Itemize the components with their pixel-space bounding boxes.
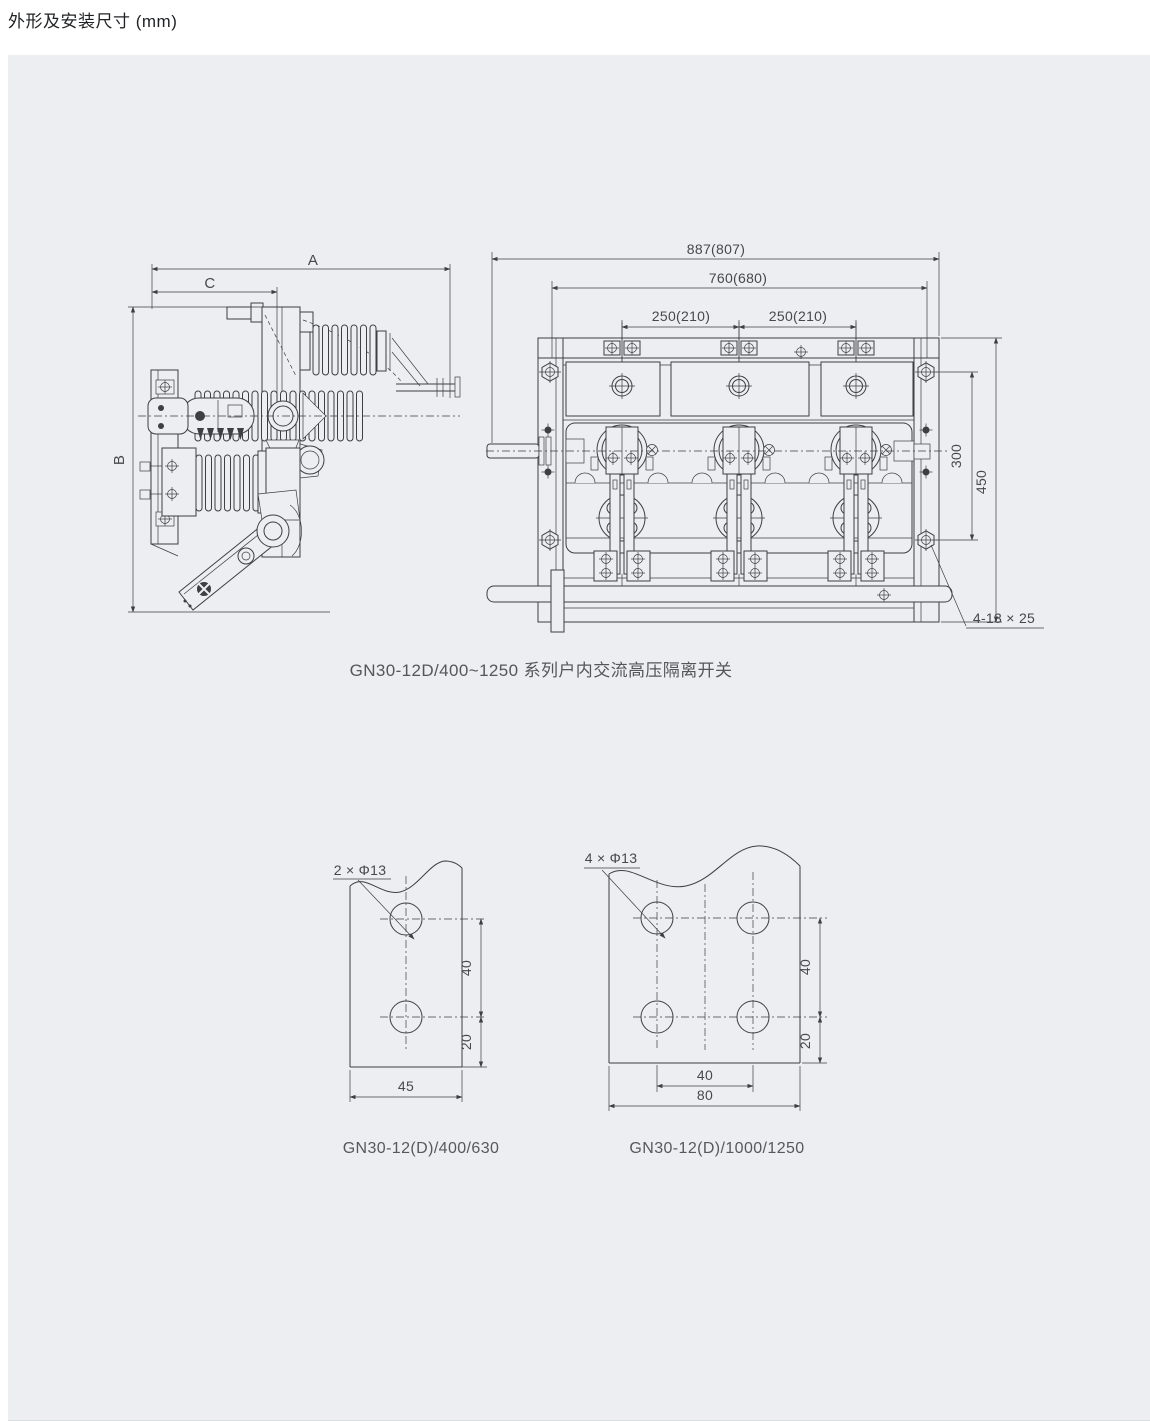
main-figure-caption: GN30-12D/400~1250 系列户内交流高压隔离开关 xyxy=(350,656,733,681)
dim-height-label: 450 xyxy=(973,470,989,494)
dim-a-label: A xyxy=(308,252,318,269)
terminal-plate-2hole-drawing: 2 × Φ13 40 20 45 xyxy=(325,840,510,1110)
dim-pole-pitch-left-label: 250(210) xyxy=(652,308,710,324)
dim-hole-vertical-label: 300 xyxy=(948,444,964,468)
terminal-plate-4hole-drawing: 4 × Φ13 40 20 40 80 xyxy=(575,828,840,1118)
plate-2hole-dimensions: 2 × Φ13 40 20 45 xyxy=(333,862,487,1102)
page-title: 外形及安装尺寸 (mm) xyxy=(8,7,177,32)
plate-2hole-caption: GN30-12(D)/400/630 xyxy=(343,1140,500,1158)
front-view-drawing: 887(807) 760(680) 250(210) 250(210) 300 … xyxy=(482,240,1052,640)
dim-mounting-width-label: 760(680) xyxy=(709,270,767,286)
dim-overall-width-label: 887(807) xyxy=(687,241,745,257)
dim-pitch-40-label: 40 xyxy=(458,960,474,976)
plate-4hole-caption: GN30-12(D)/1000/1250 xyxy=(629,1140,804,1158)
drawing-panel: A C B xyxy=(8,55,1150,1421)
plate-4hole-outline xyxy=(609,846,827,1063)
dim-pitch-h40-label: 40 xyxy=(697,1067,713,1083)
plate-4hole-dimensions: 4 × Φ13 40 20 40 80 xyxy=(584,850,827,1111)
dim-width-45-label: 45 xyxy=(398,1078,414,1094)
front-frame xyxy=(487,338,952,632)
dim-edge-20-label: 20 xyxy=(458,1034,474,1050)
label-mounting-holes: 4-13 × 25 xyxy=(973,610,1035,626)
dim-c-label: C xyxy=(204,275,215,292)
side-top-insulator xyxy=(300,325,460,397)
label-holes-2: 2 × Φ13 xyxy=(334,862,387,878)
dim-edge-20-label-2: 20 xyxy=(797,1033,813,1049)
front-dimensions: 887(807) 760(680) 250(210) 250(210) 300 … xyxy=(492,241,1044,628)
dim-width-80-label: 80 xyxy=(697,1087,713,1103)
dim-b-label: B xyxy=(111,455,128,465)
side-view-drawing: A C B xyxy=(110,240,480,630)
dim-pole-pitch-right-label: 250(210) xyxy=(769,308,827,324)
dim-pitch-v40-label: 40 xyxy=(797,959,813,975)
label-holes-4: 4 × Φ13 xyxy=(585,850,638,866)
